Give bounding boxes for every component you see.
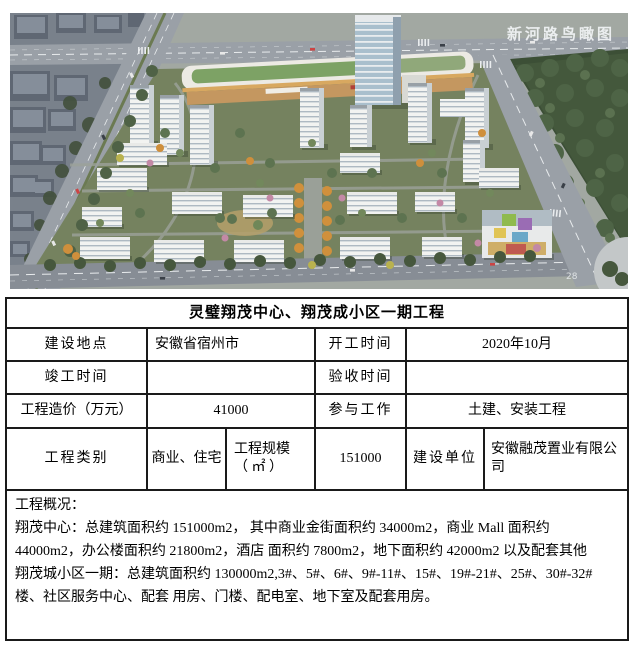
completion-date-label: 竣工时间 <box>7 362 148 395</box>
project-scale-label-line1: 工程规模 <box>234 441 290 459</box>
overview-line: 楼、社区服务中心、配套 用房、门楼、配电室、地下室及配套用房。 <box>15 586 619 609</box>
kindergarten <box>482 210 554 260</box>
participation-label: 参与工作 <box>316 395 407 429</box>
overview-heading: 工程概况： <box>15 494 619 517</box>
project-scale-value: 151000 <box>316 429 407 491</box>
aerial-rendering-scene: 新河路鸟瞰图 28 <box>10 13 628 289</box>
acceptance-date-label: 验收时间 <box>316 362 407 395</box>
builder-value: 安徽融茂置业有限公司 <box>485 429 627 491</box>
project-info-table: 灵璧翔茂中心、翔茂成小区一期工程 建设地点 安徽省宿州市 开工时间 2020年1… <box>5 297 629 641</box>
project-cost-label: 工程造价（万元） <box>7 395 148 429</box>
build-site-value: 安徽省宿州市 <box>148 329 316 362</box>
project-cost-value: 41000 <box>148 395 316 429</box>
project-scale-label: 工程规模 （ ㎡ ） <box>227 429 316 491</box>
project-category-value: 商业、住宅 <box>148 429 227 491</box>
overview-line: 44000m2，办公楼面积约 21800m2，酒店 面积约 7800m2，地下面… <box>15 540 619 563</box>
overview-line: 翔茂城小区一期：总建筑面积约 130000m2,3#、5#、6#、9#-11#、… <box>15 563 619 586</box>
project-overview: 工程概况： 翔茂中心：总建筑面积约 151000m2， 其中商业金街面积约 34… <box>7 491 627 639</box>
participation-value: 土建、安装工程 <box>407 395 627 429</box>
start-date-label: 开工时间 <box>316 329 407 362</box>
aerial-rendering: 新河路鸟瞰图 28 <box>10 13 628 289</box>
overview-line: 翔茂中心：总建筑面积约 151000m2， 其中商业金街面积约 34000m2，… <box>15 517 619 540</box>
project-title: 灵璧翔茂中心、翔茂成小区一期工程 <box>7 299 627 329</box>
acceptance-date-value <box>407 362 627 395</box>
start-date-value: 2020年10月 <box>407 329 627 362</box>
build-site-label: 建设地点 <box>7 329 148 362</box>
road-number-label: 28 <box>566 272 578 282</box>
project-category-label: 工程类别 <box>7 429 148 491</box>
builder-label: 建设单位 <box>407 429 485 491</box>
project-scale-label-line2: （ ㎡ ） <box>234 459 283 477</box>
completion-date-value <box>148 362 316 395</box>
photo-caption-label: 新河路鸟瞰图 <box>507 25 615 43</box>
